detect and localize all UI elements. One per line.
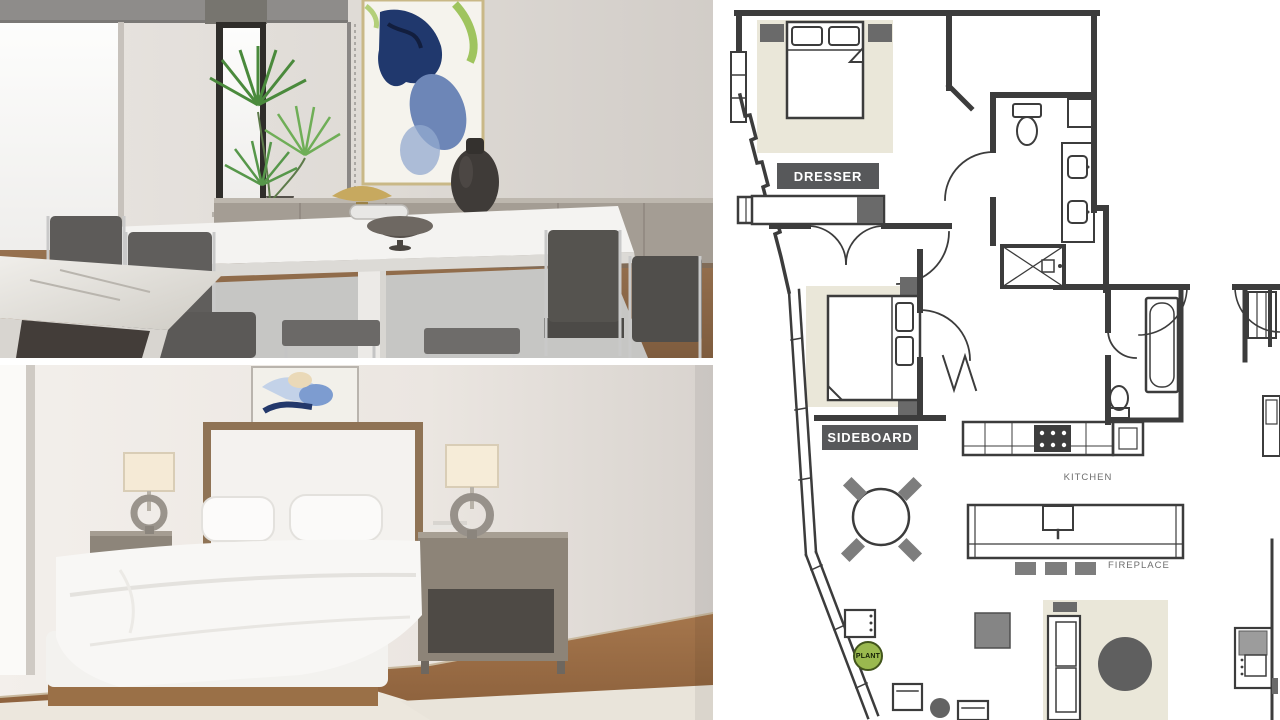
bedroom-abstract-art	[252, 367, 358, 425]
bedroom-scene	[0, 365, 713, 720]
floor-plan-drawing	[716, 0, 1280, 720]
plan-bedroom2	[817, 252, 976, 418]
bedroom-photo	[0, 365, 713, 720]
dresser-label: DRESSER	[777, 163, 879, 189]
bedroom-window-light	[0, 365, 35, 675]
plan-master-bath	[1002, 99, 1094, 287]
staging-collage: DRESSER SIDEBOARD KITCHEN FIREPLACE PLAN…	[0, 0, 1280, 720]
fireplace-label: FIREPLACE	[1108, 560, 1172, 571]
kitchen-label: KITCHEN	[1056, 472, 1120, 483]
plant-marker: PLANT	[853, 641, 883, 671]
plan-second-bath	[1108, 287, 1181, 422]
wall-corner-shadow	[695, 365, 713, 720]
plan-dining-table	[841, 477, 922, 562]
floor-plan: DRESSER SIDEBOARD KITCHEN FIREPLACE PLAN…	[716, 0, 1280, 720]
plan-far-right	[1139, 287, 1280, 456]
dining-room-photo	[0, 0, 713, 358]
plant-marker-label: PLANT	[856, 653, 880, 660]
dining-room-scene	[0, 0, 713, 358]
right-nightstand	[418, 521, 568, 674]
plan-kitchen	[963, 422, 1143, 455]
sideboard-label: SIDEBOARD	[822, 425, 918, 450]
